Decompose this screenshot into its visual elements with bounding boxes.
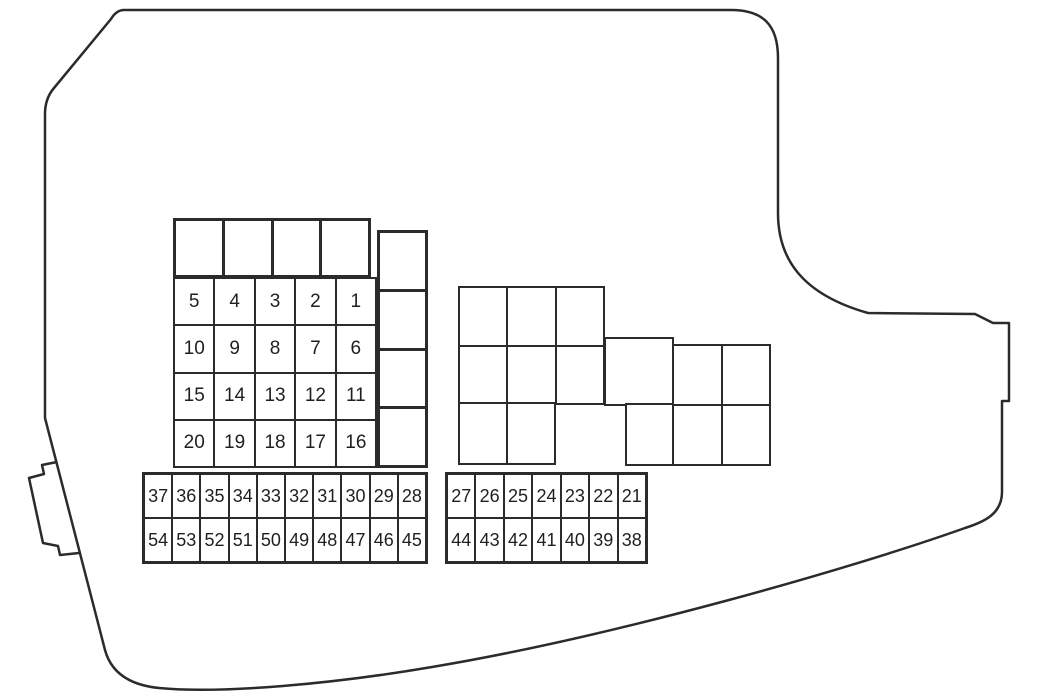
relay-box	[380, 233, 425, 289]
relay-box	[460, 404, 508, 463]
fuse-cell: 16	[337, 421, 375, 466]
fuse-cell: 41	[533, 519, 561, 561]
fuse-cell: 50	[258, 519, 286, 561]
fuse-cell: 48	[314, 519, 342, 561]
fuse-cell: 36	[173, 475, 201, 517]
relay-box	[460, 288, 508, 345]
fuse-cell: 43	[476, 519, 504, 561]
fuse-cell: 2	[296, 279, 336, 324]
relay-row	[674, 346, 769, 406]
relay-box	[557, 288, 603, 345]
relay-row	[380, 351, 425, 410]
relay-box	[723, 346, 770, 404]
fuse-strip-left: 37363534333231302928 5453525150494847464…	[142, 472, 428, 564]
relay-box	[674, 346, 723, 404]
fuse-cell: 31	[314, 475, 342, 517]
fuse-cell: 34	[230, 475, 258, 517]
fuse-cell: 46	[371, 519, 399, 561]
relay-box	[380, 409, 425, 465]
relay-column-right	[377, 230, 428, 468]
fuse-cell: 8	[256, 326, 296, 371]
fuse-cell: 19	[215, 421, 255, 466]
fuse-cell: 21	[619, 475, 645, 517]
relay-box	[557, 347, 603, 404]
relay-box	[508, 288, 556, 345]
fuse-cell: 3	[256, 279, 296, 324]
fuse-cell: 37	[145, 475, 173, 517]
relay-box	[176, 221, 225, 275]
fuse-cell: 53	[173, 519, 201, 561]
fuse-cell: 18	[256, 421, 296, 466]
relay-row	[460, 347, 603, 404]
fuse-cell: 20	[175, 421, 215, 466]
relay-box	[606, 339, 672, 404]
fuse-cell: 54	[145, 519, 173, 561]
fuse-cell: 17	[296, 421, 336, 466]
fuse-cell: 5	[175, 279, 215, 324]
mounting-tab	[29, 462, 79, 555]
fuse-cell: 28	[399, 475, 425, 517]
fuse-cell: 26	[476, 475, 504, 517]
relay-cluster-middle-box	[604, 337, 674, 406]
fuse-strip-right: 27262524232221 44434241403938	[445, 472, 648, 564]
relay-box	[380, 292, 425, 348]
fuse-cell: 13	[256, 374, 296, 419]
fuse-cell: 4	[215, 279, 255, 324]
fuse-cell: 24	[533, 475, 561, 517]
fuse-cell: 42	[505, 519, 533, 561]
relay-row	[627, 405, 672, 464]
fuse-cell: 1	[337, 279, 375, 324]
relay-box	[508, 347, 556, 404]
fuse-row: 109876	[175, 326, 375, 373]
fuse-row: 2019181716	[175, 421, 375, 466]
fuse-row: 54535251504948474645	[145, 519, 425, 561]
fuse-cell: 45	[399, 519, 425, 561]
relay-box	[460, 347, 508, 404]
relay-box	[627, 405, 672, 464]
relay-box	[225, 221, 274, 275]
main-fuse-grid: 54321 109876 1514131211 2019181716	[173, 277, 377, 468]
relay-box	[380, 351, 425, 407]
relay-row	[674, 406, 769, 464]
fuse-box-diagram: 54321 109876 1514131211 2019181716	[0, 0, 1044, 697]
fuse-cell: 10	[175, 326, 215, 371]
fuse-cell: 12	[296, 374, 336, 419]
fuse-row: 1514131211	[175, 374, 375, 421]
relay-row	[460, 404, 554, 463]
relay-cluster-middle-lower-box	[625, 403, 674, 466]
relay-row	[380, 233, 425, 292]
fuse-cell: 14	[215, 374, 255, 419]
fuse-cell: 15	[175, 374, 215, 419]
fuse-cell: 40	[562, 519, 590, 561]
relay-cluster-right	[672, 344, 771, 466]
fuse-cell: 6	[337, 326, 375, 371]
relay-row	[460, 288, 603, 347]
fuse-cell: 51	[230, 519, 258, 561]
fuse-cell: 35	[201, 475, 229, 517]
fuse-cell: 27	[448, 475, 476, 517]
fuse-cell: 38	[619, 519, 645, 561]
relay-row	[176, 221, 368, 275]
relay-row	[380, 409, 425, 465]
relay-cluster-left-upper	[458, 286, 605, 405]
fuse-row: 27262524232221	[448, 475, 645, 519]
fuse-cell: 33	[258, 475, 286, 517]
fuse-cell: 52	[201, 519, 229, 561]
fuse-cell: 7	[296, 326, 336, 371]
relay-cluster-left-lower	[458, 402, 556, 465]
fuse-cell: 39	[590, 519, 618, 561]
fuse-cell: 44	[448, 519, 476, 561]
fuse-cell: 23	[562, 475, 590, 517]
fuse-cell: 25	[505, 475, 533, 517]
fuse-row: 44434241403938	[448, 519, 645, 561]
fuse-row: 37363534333231302928	[145, 475, 425, 519]
fuse-cell: 30	[342, 475, 370, 517]
fuse-cell: 29	[371, 475, 399, 517]
fuse-cell: 11	[337, 374, 375, 419]
fuse-row: 54321	[175, 279, 375, 326]
relay-box	[723, 406, 770, 464]
relay-box	[322, 221, 368, 275]
relay-row	[606, 339, 672, 404]
fuse-cell: 49	[286, 519, 314, 561]
relay-row-top	[173, 218, 371, 278]
fuse-cell: 47	[342, 519, 370, 561]
relay-row	[380, 292, 425, 351]
fuse-cell: 22	[590, 475, 618, 517]
relay-box	[674, 406, 723, 464]
relay-box	[274, 221, 323, 275]
fuse-cell: 32	[286, 475, 314, 517]
fuse-cell: 9	[215, 326, 255, 371]
relay-box	[508, 404, 554, 463]
